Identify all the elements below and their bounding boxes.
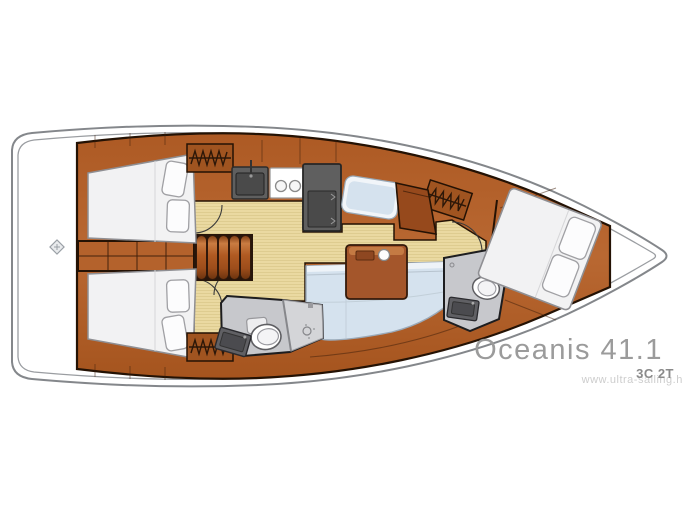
floorplan-drawing bbox=[0, 0, 683, 512]
nav-seat bbox=[341, 175, 402, 220]
companionway-steps-icon bbox=[194, 234, 253, 281]
head-sink-icon bbox=[447, 297, 479, 321]
shower-door-handle bbox=[308, 303, 313, 308]
yacht-floorplan: Oceanis 41.1 3C 2T www.ultra-sailing.hr bbox=[0, 0, 683, 512]
layout-code: 3C 2T bbox=[636, 366, 674, 381]
stove-icon bbox=[270, 168, 304, 198]
engine-compartment bbox=[78, 241, 194, 271]
hanging-locker-icon bbox=[187, 144, 233, 172]
salon-table bbox=[346, 245, 407, 299]
table-cupholder-icon bbox=[379, 250, 390, 261]
boat-model-title: Oceanis 41.1 bbox=[474, 334, 663, 367]
fridge-icon bbox=[303, 164, 341, 231]
